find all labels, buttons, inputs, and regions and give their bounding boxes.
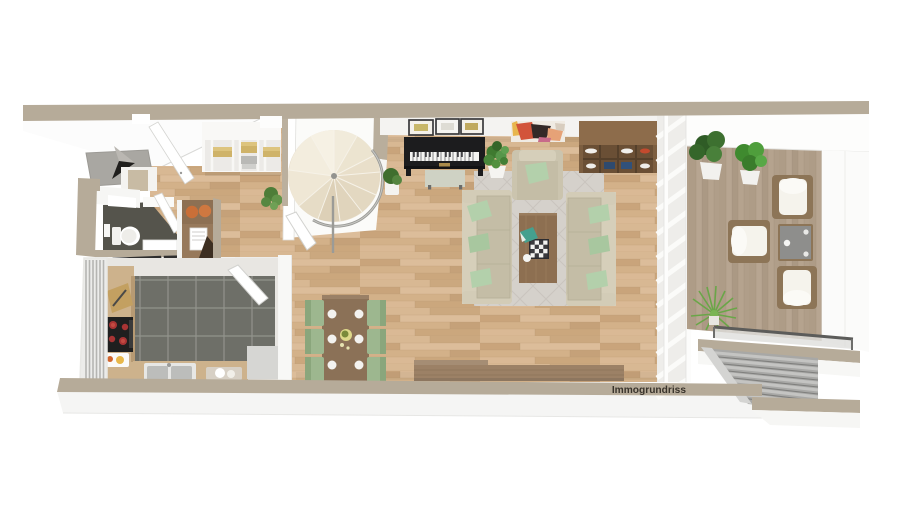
svg-text:Immogrundriss: Immogrundriss [612, 385, 686, 396]
